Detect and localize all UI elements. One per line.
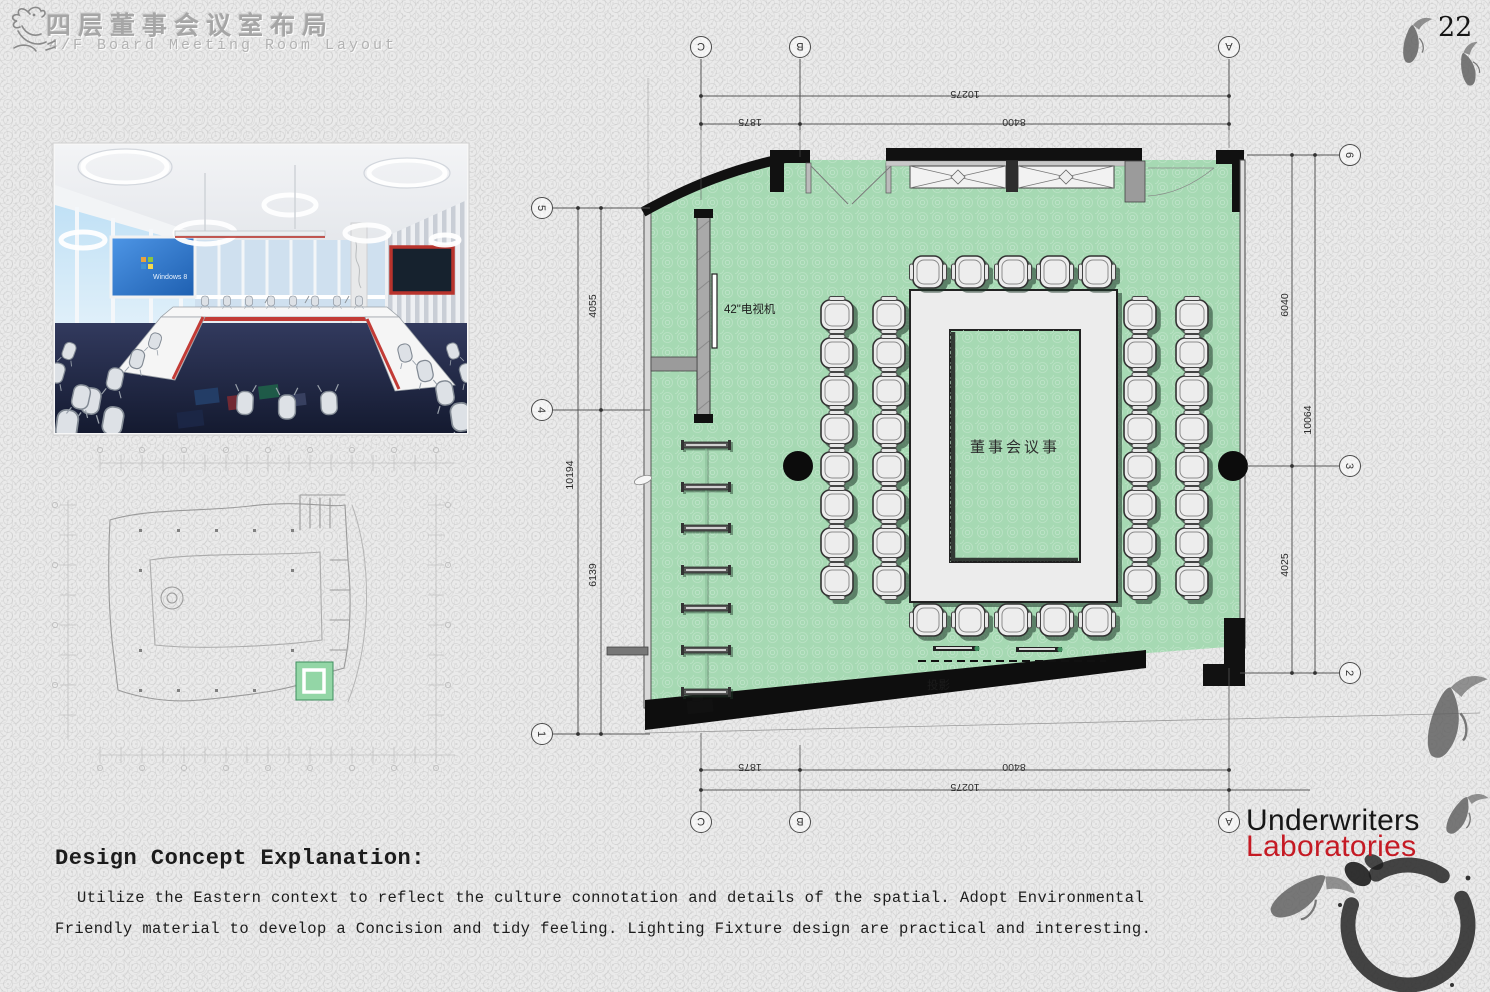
photo-render: Windows 8 — [44, 143, 479, 451]
dim-bottom-overall: 10275 — [950, 781, 979, 793]
dim-bottom-seg-left: 1875 — [738, 761, 762, 773]
tv-42inch — [712, 274, 717, 348]
chair — [1124, 563, 1156, 600]
left-wall — [644, 210, 651, 708]
chair — [1124, 449, 1156, 486]
chair — [821, 297, 853, 334]
wall-tv — [391, 247, 453, 293]
chair — [1176, 449, 1208, 486]
key-plan-room-highlight — [296, 662, 333, 700]
svg-text:5: 5 — [535, 205, 547, 211]
concept-line-2: Friendly material to develop a Concision… — [55, 914, 1215, 945]
floor-box — [933, 646, 980, 651]
chair — [1124, 335, 1156, 372]
grid-bubble-right-3: 3 — [1340, 456, 1361, 477]
dim-left-seg-bottom: 6139 — [587, 563, 599, 587]
chair — [1176, 487, 1208, 524]
projection-screen: Windows 8 — [111, 237, 195, 297]
room-label: 董事会议事 — [970, 438, 1060, 456]
grid-bubble-bottom-c: C — [691, 812, 712, 833]
svg-text:4: 4 — [535, 407, 547, 413]
design-concept-section: Design Concept Explanation: Utilize the … — [55, 846, 1215, 945]
koi-fish-icon — [1442, 785, 1489, 841]
chair — [873, 449, 905, 486]
grid-bubble-left-5: 5 — [532, 198, 553, 219]
chair — [952, 256, 989, 288]
grid-bubble-left-1: 1 — [532, 724, 553, 745]
key-plan — [52, 447, 455, 770]
chair — [952, 604, 989, 636]
cabinet — [1018, 166, 1114, 188]
chair — [821, 563, 853, 600]
chair — [1037, 256, 1074, 288]
chair — [1037, 604, 1074, 636]
floor-box — [1016, 647, 1063, 652]
floor-plan: 42"电视机 董事会议事 — [607, 78, 1480, 733]
dim-right-seg-top: 6040 — [1279, 293, 1291, 317]
svg-text:C: C — [697, 815, 705, 827]
chair — [821, 411, 853, 448]
chair — [873, 487, 905, 524]
chair — [873, 335, 905, 372]
rooster-logo-icon — [13, 7, 55, 51]
dim-top-overall: 10275 — [950, 88, 979, 100]
dim-left-seg-top: 4055 — [587, 294, 599, 318]
chair — [1079, 256, 1116, 288]
grid-bubble-right-6: 6 — [1340, 145, 1361, 166]
chair — [873, 373, 905, 410]
svg-text:2: 2 — [1343, 670, 1355, 676]
chair — [821, 335, 853, 372]
chair — [1176, 335, 1208, 372]
chair — [1176, 411, 1208, 448]
koi-fish-icon — [1422, 667, 1488, 765]
chair — [995, 604, 1032, 636]
grid-bubble-top-a: A — [1219, 37, 1240, 58]
chair — [910, 604, 947, 636]
dim-right-overall: 10064 — [1302, 405, 1314, 434]
dim-top-seg-left: 1875 — [738, 116, 762, 128]
dim-top-seg-right: 8400 — [1002, 116, 1026, 128]
chair — [1124, 525, 1156, 562]
svg-text:C: C — [697, 40, 705, 52]
ul-logo-line2: Laboratories — [1246, 832, 1420, 861]
koi-fish-icon — [1457, 42, 1485, 87]
ul-logo: Underwriters Laboratories — [1246, 806, 1420, 861]
chair — [873, 297, 905, 334]
svg-text:B: B — [796, 815, 803, 827]
dim-right-seg-bottom: 4025 — [1279, 553, 1291, 577]
grid-bubble-right-2: 2 — [1340, 663, 1361, 684]
chair — [1176, 563, 1208, 600]
grid-bubble-top-c: C — [691, 37, 712, 58]
column — [1218, 451, 1248, 481]
grid-bubble-bottom-b: B — [790, 812, 811, 833]
concept-heading: Design Concept Explanation: — [55, 846, 1215, 871]
svg-text:1: 1 — [535, 731, 547, 737]
svg-text:3: 3 — [1343, 463, 1355, 469]
concept-line-1: Utilize the Eastern context to reflect t… — [55, 883, 1215, 914]
cabinet — [910, 166, 1006, 188]
svg-text:A: A — [1225, 815, 1233, 827]
chair — [821, 525, 853, 562]
chair — [821, 373, 853, 410]
chair — [821, 487, 853, 524]
grid-bubble-top-b: B — [790, 37, 811, 58]
koi-fish-icon — [1401, 15, 1432, 66]
pendant-light — [175, 231, 325, 236]
chair — [873, 411, 905, 448]
grid-bubble-bottom-a: A — [1219, 812, 1240, 833]
svg-text:A: A — [1225, 40, 1233, 52]
projection-label: 投影 — [927, 678, 950, 692]
chair — [910, 256, 947, 288]
tv-label: 42"电视机 — [724, 302, 776, 316]
grid-bubble-left-4: 4 — [532, 400, 553, 421]
chair — [1176, 297, 1208, 334]
wall-stub — [651, 357, 697, 371]
chair — [995, 256, 1032, 288]
svg-text:6: 6 — [1343, 152, 1355, 158]
column — [783, 451, 813, 481]
chair — [1079, 604, 1116, 636]
chair — [1176, 525, 1208, 562]
screen-label: Windows 8 — [153, 274, 187, 281]
chair — [873, 525, 905, 562]
presentation-board: 四层董事会议室布局 4/F Board Meeting Room Layout … — [0, 0, 1490, 992]
svg-text:B: B — [796, 40, 803, 52]
chair — [1124, 297, 1156, 334]
dim-bottom-seg-right: 8400 — [1002, 761, 1026, 773]
chair — [1124, 487, 1156, 524]
chair — [1176, 373, 1208, 410]
dim-left-overall: 10194 — [564, 460, 576, 489]
right-wall — [1240, 160, 1245, 648]
chair — [1124, 411, 1156, 448]
chair — [1124, 373, 1156, 410]
chair — [821, 449, 853, 486]
chair — [873, 563, 905, 600]
